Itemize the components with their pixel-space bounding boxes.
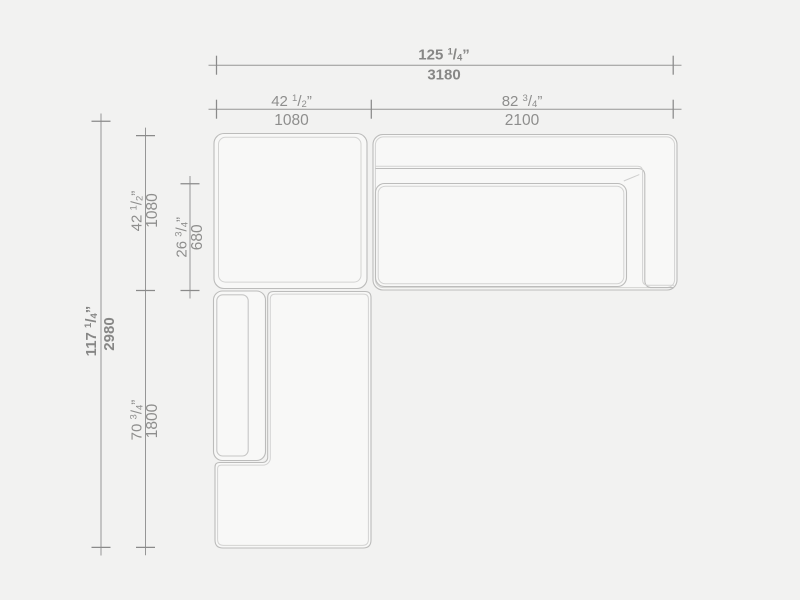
svg-text:680: 680 [189, 224, 206, 250]
svg-text:1800: 1800 [144, 403, 161, 438]
svg-text:2980: 2980 [101, 317, 118, 350]
svg-text:117 1/4”: 117 1/4” [83, 306, 100, 357]
svg-text:1080: 1080 [144, 193, 161, 228]
svg-text:1080: 1080 [274, 112, 309, 129]
svg-text:3180: 3180 [427, 67, 460, 84]
svg-text:2100: 2100 [505, 112, 540, 129]
svg-text:125 1/4”: 125 1/4” [418, 47, 469, 64]
